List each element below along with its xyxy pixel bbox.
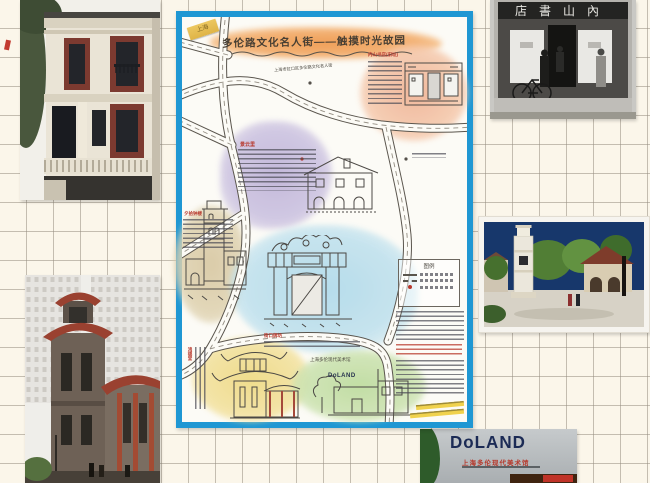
legend-title: 图例	[399, 262, 459, 270]
label-hongde-hall: 鸿德堂	[187, 347, 193, 361]
hongde-notes-vertical	[195, 347, 209, 409]
bookstore-photo-illustration: 店書山內	[490, 0, 636, 119]
museum-name-en-line	[462, 466, 540, 468]
label-museum-logo: DoLAND	[328, 373, 356, 379]
banner-strip	[510, 474, 577, 483]
legend-row-lane	[403, 279, 455, 282]
doland-logo-text: DoLAND	[450, 433, 526, 454]
photo-hongde-temple	[25, 275, 160, 483]
label-museum: 上海多伦现代美术馆	[310, 357, 351, 363]
notes-paragraph-red	[396, 344, 462, 357]
legend-row-site	[403, 285, 455, 289]
photo-uchiyama-bookstore-bw: 店書山內	[490, 0, 636, 119]
sketch-hongde-hall	[208, 343, 303, 421]
label-archway: 街口牌坊	[264, 333, 282, 339]
tree-foliage	[420, 429, 440, 483]
photo-clocktower-street	[478, 216, 650, 333]
legend-row-main-road	[403, 273, 455, 276]
map-legend: 图例	[398, 259, 460, 307]
photo-historic-villa	[20, 0, 160, 200]
label-belltower: 夕拾钟楼	[184, 211, 202, 217]
label-bookstore: 内山书店(旧址)	[368, 52, 398, 58]
title-underline-squiggle	[228, 50, 428, 58]
archway-notes	[264, 341, 360, 350]
photo-museum-wall: DoLAND 上海多伦现代美术馆	[420, 429, 577, 483]
sketch-archway	[254, 235, 362, 331]
sketch-bookstore	[404, 59, 464, 107]
clocktower-illustration	[484, 222, 644, 327]
hand-drawn-map: 上海 多伦路文化名人街——触摸时光故园	[182, 17, 467, 422]
jingyunli-notes	[238, 149, 316, 191]
belltower-notes	[183, 219, 233, 251]
red-index-tab	[4, 40, 11, 51]
notes-paragraph-1	[396, 311, 464, 341]
school-label-scribble	[412, 153, 446, 158]
label-jingyunli: 景云里	[240, 141, 255, 148]
scrapbook-page: 店書山內	[0, 0, 650, 483]
notes-paragraph-2	[396, 360, 464, 396]
villa-illustration	[20, 0, 160, 200]
bookstore-notes	[368, 61, 402, 107]
temple-illustration	[25, 275, 160, 483]
banner-red-block	[543, 475, 573, 482]
bookstore-sign-text: 店書山內	[515, 4, 611, 18]
